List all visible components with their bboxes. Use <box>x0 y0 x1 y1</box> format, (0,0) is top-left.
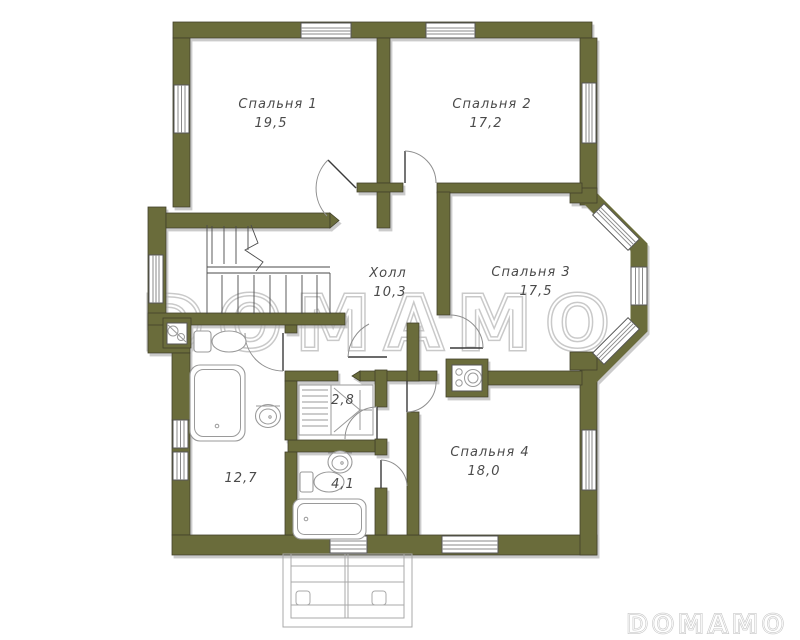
window-top-2 <box>426 23 475 38</box>
wall-closet-bath <box>288 440 375 452</box>
room-area-bedroom-3: 17,5 <box>520 284 553 299</box>
watermark-corner-text-inner: DOMAMO <box>626 610 788 640</box>
wall-hall-south-jamb <box>352 371 360 381</box>
floor-plan-page: DOMAMO DOMAMO <box>0 0 800 640</box>
wall-bed4-left-lower <box>407 412 419 535</box>
room-label-bedroom-4: Спальня 4 <box>450 445 529 460</box>
window-bay-upper <box>593 204 640 251</box>
toilet-large-bath-icon <box>194 331 246 352</box>
door-bedroom-2 <box>405 151 436 183</box>
door-bedroom-1 <box>316 160 356 216</box>
room-label-bedroom-3: Спальня 3 <box>491 265 570 280</box>
wall-bottom <box>172 535 597 555</box>
porch-outline <box>283 554 412 627</box>
wall-stub-hall-north <box>357 183 403 192</box>
room-area-bathroom-large: 12,7 <box>225 471 258 486</box>
window-bottom-2 <box>442 536 498 553</box>
wall-bed4-top <box>485 371 582 385</box>
room-label-bedroom-1: Спальня 1 <box>238 97 317 112</box>
wall-hall-south-c <box>419 371 437 381</box>
room-area-hall: 10,3 <box>374 285 407 300</box>
wall-bed3-hall <box>437 192 450 315</box>
wall-bed4-left-upper <box>407 323 419 381</box>
room-area-bedroom-2: 17,2 <box>470 116 503 131</box>
wall-bath-east-a <box>375 370 387 407</box>
watermark-corner: DOMAMO DOMAMO <box>626 610 788 640</box>
window-top-1 <box>301 23 351 38</box>
window-right-bed2 <box>582 83 596 143</box>
bathtub-vertical-icon <box>190 365 245 441</box>
wall-bath-west-a <box>285 325 297 333</box>
floor-plan: DOMAMO DOMAMO <box>0 0 800 640</box>
window-left-lower-2 <box>173 452 188 480</box>
sink-shell-icon <box>328 451 352 473</box>
door-closet <box>345 407 377 439</box>
sink-round-icon <box>256 405 281 428</box>
room-area-closet: 2,8 <box>331 393 355 408</box>
wall-bed1-hall <box>377 192 390 228</box>
bathtub-horizontal-icon <box>293 499 366 539</box>
door-bedroom-4 <box>407 381 436 412</box>
window-left-mid <box>149 255 163 303</box>
window-bay-middle <box>631 267 647 305</box>
wall-bath-west-b <box>285 381 297 440</box>
door-bathroom-small <box>381 460 407 488</box>
window-right-bed4 <box>582 430 596 490</box>
wall-top <box>173 22 592 38</box>
room-area-bathroom-small: 4,1 <box>331 477 355 492</box>
window-left-lower-1 <box>173 420 188 448</box>
wall-bed2-bottom <box>437 183 582 193</box>
room-area-bedroom-4: 18,0 <box>468 464 501 479</box>
bay-connector-bottom <box>570 352 597 370</box>
room-label-bedroom-2: Спальня 2 <box>452 97 531 112</box>
wall-bed1-jamb <box>330 213 339 228</box>
wall-left-lower1 <box>172 353 190 420</box>
wall-bed1-bed2 <box>377 38 390 183</box>
room-area-bedroom-1: 19,5 <box>255 116 288 131</box>
wall-bath-east-b <box>375 439 387 455</box>
wall-bed1-bottom <box>166 213 330 228</box>
wall-hall-south-a <box>285 371 338 381</box>
window-left-upper <box>174 85 189 133</box>
room-label-hall: Холл <box>368 266 406 281</box>
wall-bath-east-c <box>375 488 387 535</box>
